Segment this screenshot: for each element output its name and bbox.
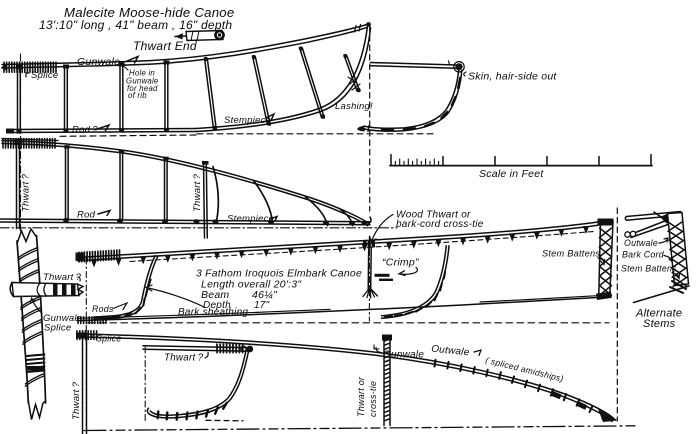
svg-text:Splice: Splice (44, 323, 71, 334)
svg-text:Rod: Rod (77, 210, 96, 221)
svg-text:17": 17" (254, 300, 270, 311)
svg-text:Thwart ?: Thwart ? (71, 381, 82, 420)
svg-text:Thwart or: Thwart or (356, 376, 366, 417)
svg-text:Thwart End: Thwart End (133, 39, 197, 53)
svg-text:Stem Battens: Stem Battens (542, 249, 600, 259)
svg-text:Stempiece: Stempiece (227, 214, 274, 225)
svg-text:cross-tie: cross-tie (368, 381, 378, 417)
svg-text:Stems: Stems (643, 318, 676, 330)
svg-text:Rod ?: Rod ? (72, 125, 98, 136)
svg-text:Thwart ?: Thwart ? (164, 353, 204, 364)
svg-text:Depth: Depth (203, 300, 231, 311)
svg-text:Gunwale: Gunwale (77, 56, 120, 68)
svg-text:Stem Battens: Stem Battens (621, 264, 677, 274)
svg-text:Gunwale: Gunwale (383, 350, 424, 361)
svg-text:bark-cord cross-tie: bark-cord cross-tie (396, 219, 484, 230)
svg-text:Thwart ?: Thwart ? (192, 173, 203, 212)
svg-text:Thwart ?: Thwart ? (21, 173, 32, 212)
svg-text:Thwart ?: Thwart ? (43, 272, 82, 283)
svg-text:Scale in Feet: Scale in Feet (479, 168, 544, 180)
svg-text:Stempiece: Stempiece (224, 115, 271, 126)
svg-text:13':10" long , 41" beam , 16": 13':10" long , 41" beam , 16" depth (39, 18, 232, 32)
svg-text:“Crimp”: “Crimp” (382, 257, 419, 269)
svg-text:Splice: Splice (96, 334, 121, 344)
svg-text:Lashing!: Lashing! (335, 101, 373, 112)
svg-text:of rib: of rib (128, 91, 147, 100)
svg-text:Skin, hair-side out: Skin, hair-side out (468, 71, 557, 83)
svg-text:Splice: Splice (31, 70, 58, 81)
svg-text:Rods: Rods (92, 304, 114, 314)
svg-text:Outwale: Outwale (624, 238, 658, 248)
svg-text:Bark Cord: Bark Cord (622, 250, 665, 260)
